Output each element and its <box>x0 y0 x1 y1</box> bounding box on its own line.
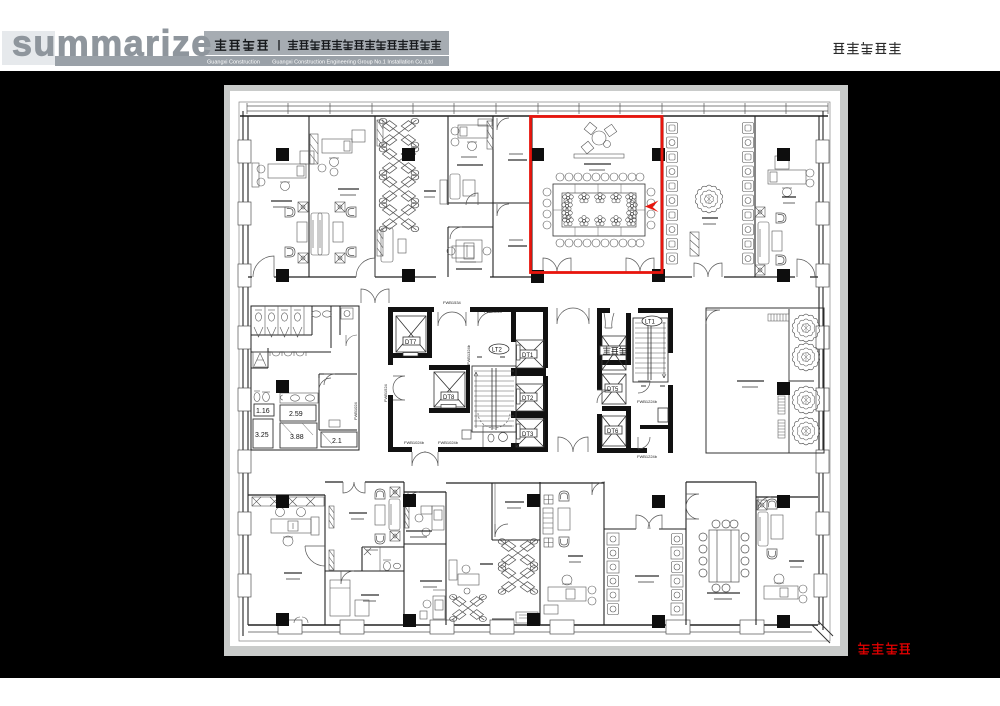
svg-text:3.88: 3.88 <box>290 434 304 441</box>
svg-text:2.59: 2.59 <box>289 411 303 418</box>
svg-text:FWB1224b: FWB1224b <box>637 399 658 404</box>
svg-text:FWB1324b: FWB1324b <box>466 344 471 365</box>
svg-text:LT1: LT1 <box>645 320 656 326</box>
svg-text:3.25: 3.25 <box>255 432 269 439</box>
svg-text:DT3: DT3 <box>522 432 534 438</box>
svg-text:FWB1224: FWB1224 <box>484 309 503 314</box>
svg-text:summarize: summarize <box>12 23 213 64</box>
svg-text:FWB1024b: FWB1024b <box>438 440 459 445</box>
svg-text:1.16: 1.16 <box>256 408 270 415</box>
svg-text:DT8: DT8 <box>443 395 455 401</box>
svg-text:DT7: DT7 <box>405 340 417 346</box>
svg-text:DT2: DT2 <box>522 396 534 402</box>
svg-text:FWB1524: FWB1524 <box>383 383 388 402</box>
svg-text:FWB1224b: FWB1224b <box>637 454 658 459</box>
svg-text:DT1: DT1 <box>522 353 534 359</box>
svg-text:FWB1534: FWB1534 <box>443 300 462 305</box>
svg-text:FWB1024: FWB1024 <box>353 401 358 420</box>
svg-text:2.1: 2.1 <box>332 438 342 445</box>
svg-text:FWB1024b: FWB1024b <box>404 440 425 445</box>
svg-text:LT2: LT2 <box>492 348 503 354</box>
svg-text:Guangxi Construction Gu: Guangxi Construction Guangxi Constructio… <box>207 60 433 66</box>
svg-text:DT6: DT6 <box>607 429 619 435</box>
